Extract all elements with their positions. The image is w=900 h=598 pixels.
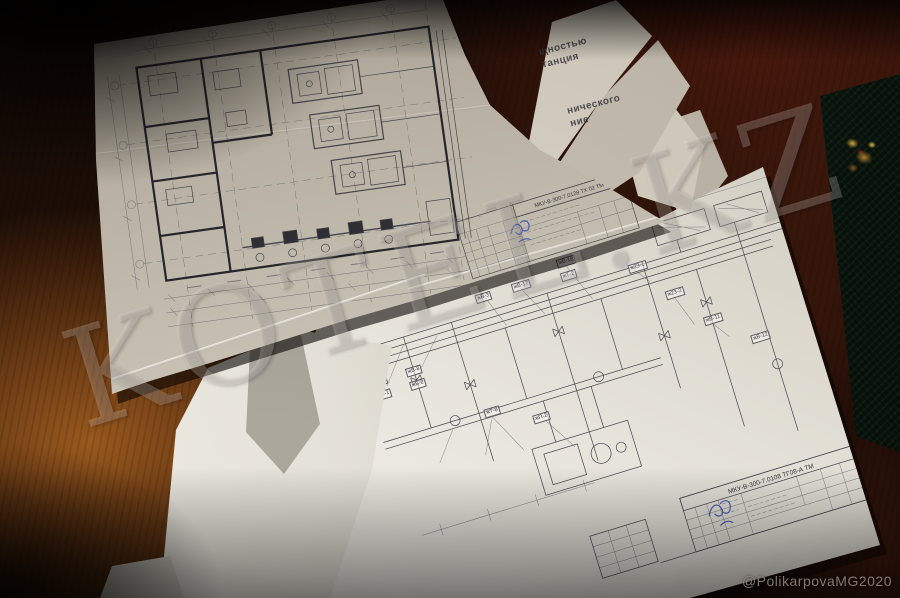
photo-credit-text: @PolikarpovaMG2020 — [742, 573, 892, 589]
approval-stamp-blue — [706, 500, 735, 529]
title-block-bottom: МКУ-В-300-7.0108 ТГ08-А ТМ — [680, 444, 874, 552]
dimension-lines — [100, 5, 470, 331]
sheet-designation: МКУ-В-300-7.0108 ТГ08-А ТМ — [727, 463, 814, 496]
photo-scene: МКУ-В-300-7.0108 ТГ08-А ТМ жВ-1 жВ-8 жБ-… — [0, 0, 900, 598]
boiler-units — [288, 56, 405, 199]
